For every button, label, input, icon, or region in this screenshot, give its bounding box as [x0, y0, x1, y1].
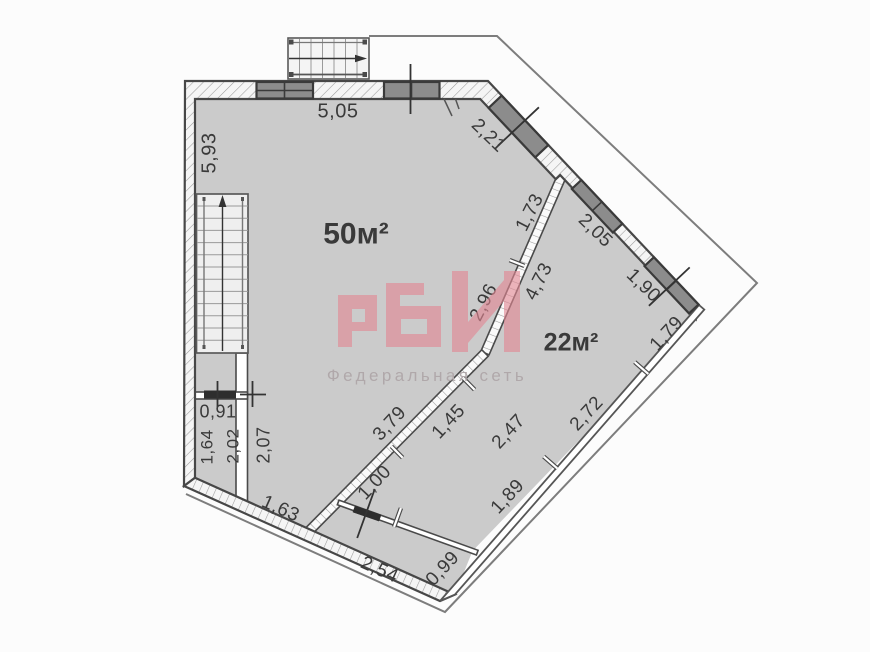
svg-text:2,02: 2,02 — [224, 428, 243, 463]
svg-text:1,64: 1,64 — [198, 429, 217, 464]
svg-text:50м²: 50м² — [323, 218, 389, 251]
svg-text:Федеральная сеть: Федеральная сеть — [327, 366, 527, 385]
svg-text:0,91: 0,91 — [199, 402, 236, 422]
svg-text:5,05: 5,05 — [318, 101, 359, 123]
svg-text:22м²: 22м² — [544, 329, 599, 357]
svg-text:5,93: 5,93 — [199, 133, 221, 174]
svg-text:2,07: 2,07 — [254, 426, 274, 463]
